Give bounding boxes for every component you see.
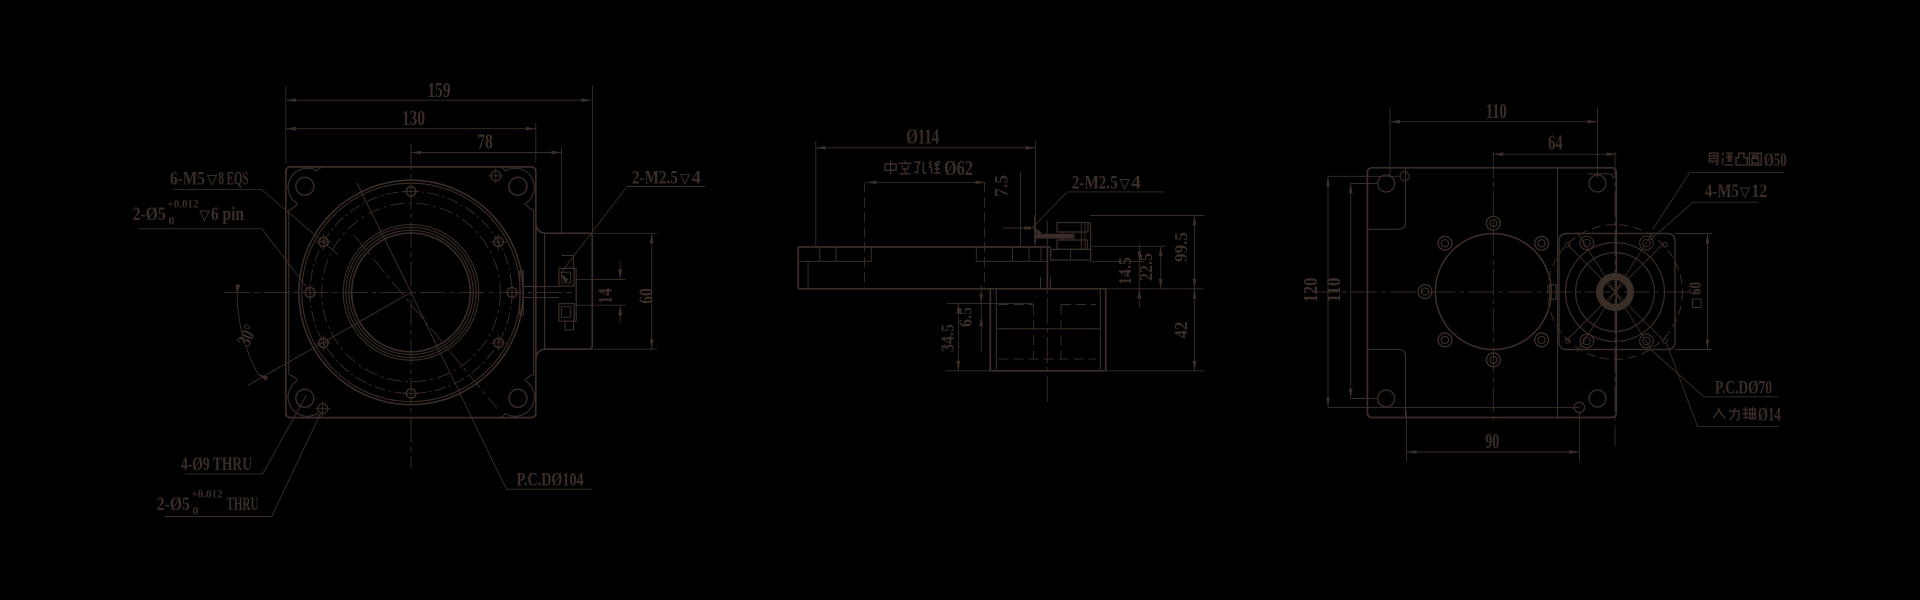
svg-text:34.5: 34.5 xyxy=(938,324,958,352)
svg-text:22.5: 22.5 xyxy=(1136,253,1156,281)
svg-text:8 EQS: 8 EQS xyxy=(219,169,249,190)
svg-text:Ø14: Ø14 xyxy=(1758,405,1781,426)
svg-text:110: 110 xyxy=(1486,99,1507,123)
svg-text:+0.012: +0.012 xyxy=(168,197,199,211)
svg-text:60: 60 xyxy=(636,288,658,304)
svg-text:6-M5: 6-M5 xyxy=(170,169,205,190)
svg-text:0: 0 xyxy=(169,214,175,228)
svg-text:64: 64 xyxy=(1548,131,1563,155)
svg-text:Ø62: Ø62 xyxy=(944,156,973,180)
svg-text:14.5: 14.5 xyxy=(1115,257,1135,285)
svg-text:4-M5: 4-M5 xyxy=(1705,181,1739,202)
svg-text:14: 14 xyxy=(595,288,617,304)
svg-text:2-M2.5: 2-M2.5 xyxy=(1072,173,1118,194)
svg-text:Ø50: Ø50 xyxy=(1764,150,1787,171)
svg-text:Ø114: Ø114 xyxy=(906,125,939,149)
svg-text:99.5: 99.5 xyxy=(1171,232,1191,262)
svg-text:130: 130 xyxy=(402,106,425,130)
svg-text:2-M2.5: 2-M2.5 xyxy=(632,168,678,189)
svg-text:12: 12 xyxy=(1751,181,1767,202)
svg-text:4: 4 xyxy=(692,168,702,189)
svg-text:+0.012: +0.012 xyxy=(192,487,223,501)
svg-text:THRU: THRU xyxy=(227,494,259,515)
svg-text:P.C.DØ104: P.C.DØ104 xyxy=(517,470,584,491)
svg-text:60: 60 xyxy=(1685,282,1705,295)
svg-text:78: 78 xyxy=(477,130,493,154)
svg-text:2-Ø5: 2-Ø5 xyxy=(133,204,166,225)
svg-text:6.5: 6.5 xyxy=(956,307,976,327)
svg-text:42: 42 xyxy=(1171,322,1191,339)
svg-text:4-Ø9 THRU: 4-Ø9 THRU xyxy=(181,454,252,475)
svg-text:4: 4 xyxy=(1131,173,1141,194)
svg-text:6 pin: 6 pin xyxy=(211,204,244,225)
svg-text:159: 159 xyxy=(428,78,451,102)
svg-text:90: 90 xyxy=(1485,429,1499,453)
svg-text:0: 0 xyxy=(193,504,199,518)
svg-text:P.C.DØ70: P.C.DØ70 xyxy=(1715,378,1772,399)
svg-text:120: 120 xyxy=(1300,278,1322,303)
svg-text:2-Ø5: 2-Ø5 xyxy=(157,494,190,515)
svg-text:110: 110 xyxy=(1323,278,1345,303)
svg-text:7.5: 7.5 xyxy=(992,175,1013,197)
